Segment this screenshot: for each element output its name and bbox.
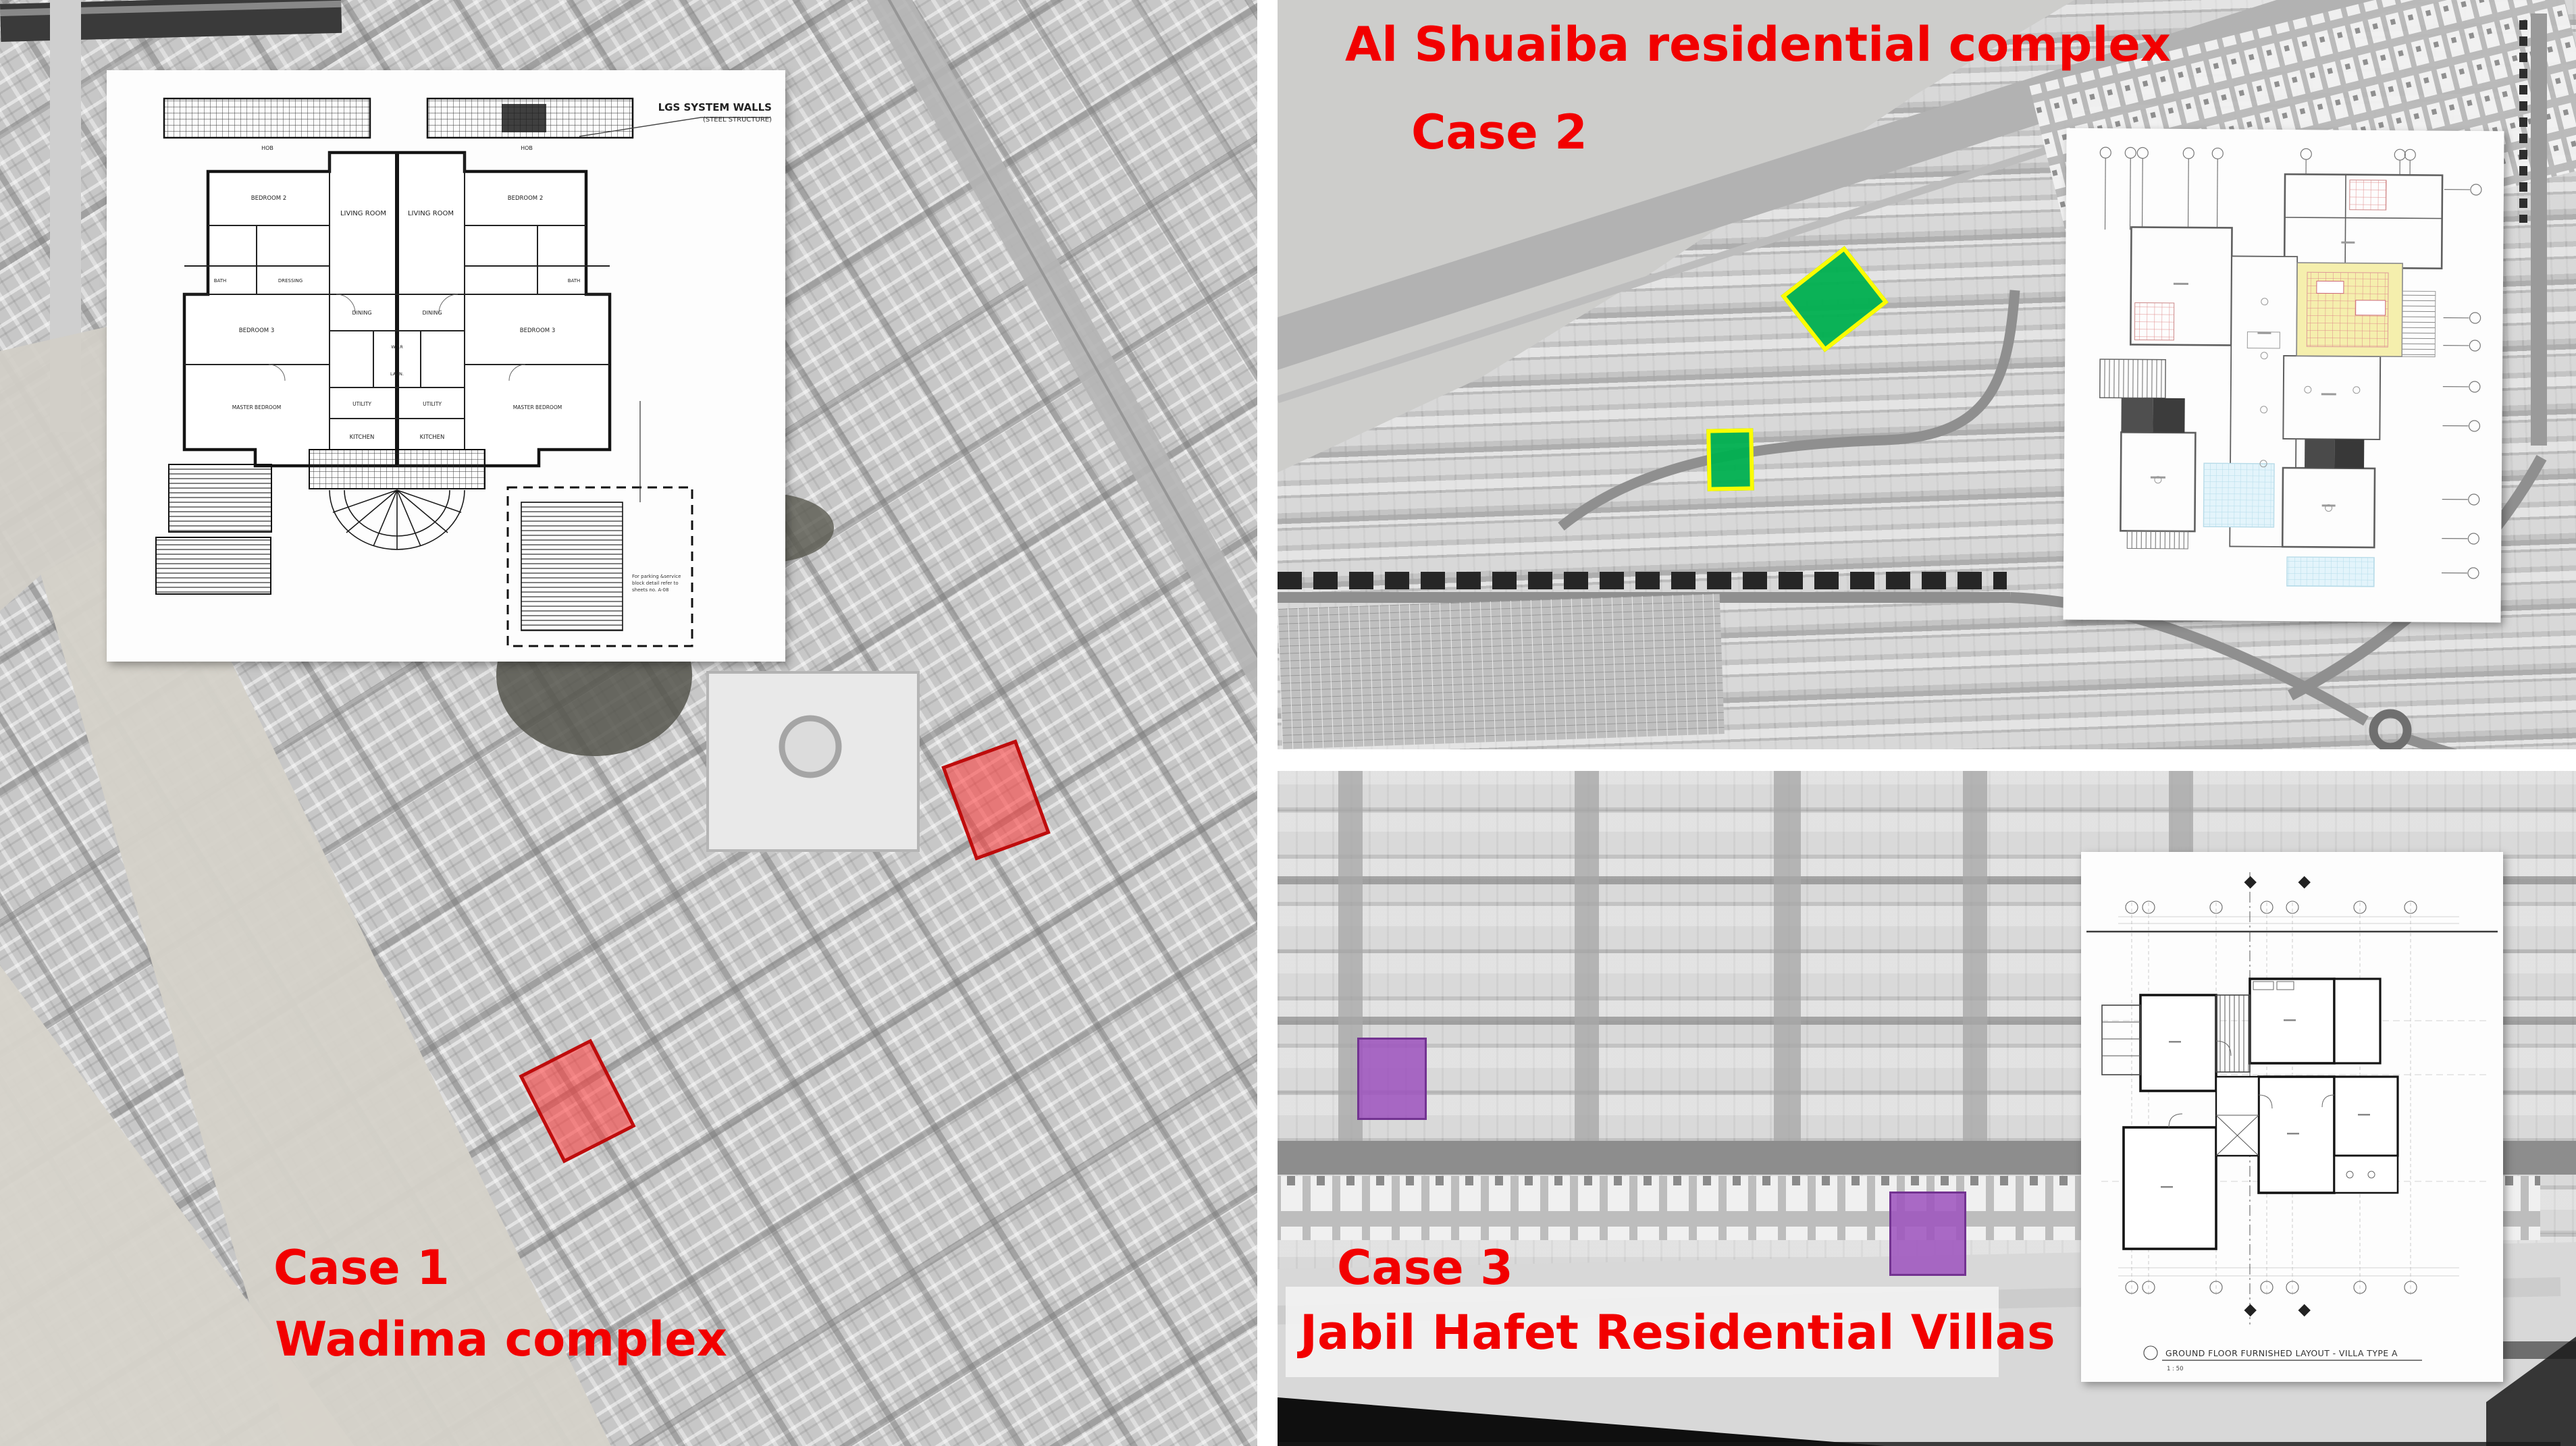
case2-name: Al Shuaiba residential complex bbox=[1345, 20, 2171, 70]
callout-text-1: LGS SYSTEM WALLS bbox=[658, 101, 772, 113]
svg-text:LIVING ROOM: LIVING ROOM bbox=[408, 210, 454, 217]
porch-steps bbox=[2102, 1022, 2140, 1056]
svg-text:HOB: HOB bbox=[261, 145, 273, 151]
parking-note: For parking &service block detail refer … bbox=[632, 574, 681, 593]
svg-text:BATH: BATH bbox=[568, 278, 581, 284]
svg-text:LAUN.: LAUN. bbox=[390, 371, 404, 377]
svg-text:MASTER BEDROOM: MASTER BEDROOM bbox=[513, 404, 562, 410]
dark-room-3 bbox=[2305, 439, 2334, 468]
road-right-edge bbox=[2531, 14, 2547, 446]
pergola-left bbox=[164, 99, 370, 138]
pergola-bottom-left-1 bbox=[169, 464, 271, 532]
svg-text:MASTER BEDROOM: MASTER BEDROOM bbox=[232, 404, 281, 410]
case1-satellite-image: Case 1 Wadima complex LGS SYSTEM WALLS (… bbox=[0, 0, 1257, 1446]
grid-bubbles-right bbox=[2442, 184, 2481, 579]
svg-text:BEDROOM 3: BEDROOM 3 bbox=[239, 327, 274, 334]
kitchen-tag-1 bbox=[2317, 281, 2344, 293]
cemetery-block bbox=[1278, 593, 1725, 749]
svg-text:BEDROOM 2: BEDROOM 2 bbox=[251, 195, 286, 202]
stair-core bbox=[2216, 995, 2250, 1072]
svg-text:sheets no. A-08: sheets no. A-08 bbox=[632, 587, 668, 593]
case3-label: Case 3 bbox=[1337, 1243, 1513, 1293]
pergola-block bbox=[502, 104, 546, 132]
svg-text:LIVING ROOM: LIVING ROOM bbox=[340, 210, 386, 217]
case3-highlight-building-2 bbox=[1889, 1191, 1966, 1276]
svg-text:UTILITY: UTILITY bbox=[352, 401, 371, 407]
circular-plaza bbox=[782, 718, 839, 775]
svg-text:KITCHEN: KITCHEN bbox=[350, 434, 375, 441]
pergola-bottom-left-2 bbox=[156, 537, 271, 594]
svg-text:For parking &service: For parking &service bbox=[632, 574, 681, 579]
entry-porch bbox=[2102, 1005, 2140, 1075]
svg-text:BEDROOM 3: BEDROOM 3 bbox=[520, 327, 555, 334]
callout-text-2: (STEEL STRUCTURE) bbox=[703, 116, 772, 124]
svg-text:DINING: DINING bbox=[352, 310, 371, 316]
caption-bubble bbox=[2144, 1346, 2157, 1360]
case3-satellite-image: Case 3 Jabil Hafet Residential Villas bbox=[1278, 771, 2576, 1446]
case1-floorplan-drawing: LGS SYSTEM WALLS (STEEL STRUCTURE) bbox=[107, 70, 785, 662]
porch-steps bbox=[2127, 531, 2188, 549]
stairs bbox=[2100, 359, 2165, 398]
kitchen-tag-2 bbox=[2356, 300, 2386, 315]
pool-terrace-2 bbox=[2287, 557, 2374, 587]
roundabout bbox=[2373, 714, 2407, 747]
spiral-stair bbox=[330, 490, 465, 550]
side-streets bbox=[1338, 771, 2193, 1146]
terrace-lines bbox=[2402, 291, 2436, 356]
svg-text:block detail refer to: block detail refer to bbox=[632, 581, 679, 586]
svg-text:DINING: DINING bbox=[422, 310, 442, 316]
plan2-walls bbox=[2120, 173, 2442, 547]
svg-text:UTILITY: UTILITY bbox=[423, 401, 442, 407]
case2-floorplan-inset bbox=[2063, 128, 2504, 623]
case3-floorplan-inset: GROUND FLOOR FURNISHED LAYOUT - VILLA TY… bbox=[2081, 852, 2503, 1382]
svg-text:KITCHEN: KITCHEN bbox=[420, 434, 445, 441]
plan3-caption: GROUND FLOOR FURNISHED LAYOUT - VILLA TY… bbox=[2165, 1348, 2398, 1358]
case3-highlight-building-1 bbox=[1357, 1038, 1427, 1120]
dark-room-4 bbox=[2334, 439, 2364, 468]
svg-text:W.T.R: W.T.R bbox=[391, 344, 403, 350]
case1-floorplan-inset: LGS SYSTEM WALLS (STEEL STRUCTURE) bbox=[107, 70, 785, 662]
svg-text:BEDROOM 2: BEDROOM 2 bbox=[508, 195, 543, 202]
case2-floorplan-drawing bbox=[2063, 128, 2504, 623]
case2-highlight-building-2 bbox=[1706, 428, 1754, 491]
case2-satellite-image: Al Shuaiba residential complex Case 2 bbox=[1278, 0, 2576, 749]
villa-walls bbox=[2124, 979, 2398, 1249]
svg-text:DRESSING: DRESSING bbox=[278, 278, 303, 284]
pool-terrace-1 bbox=[2203, 463, 2274, 527]
main-road bbox=[878, 0, 1257, 695]
dark-room-1 bbox=[2121, 398, 2153, 432]
case3-name: Jabil Hafet Residential Villas bbox=[1300, 1308, 2055, 1358]
case2-label: Case 2 bbox=[1411, 108, 1587, 158]
case3-floorplan-drawing: GROUND FLOOR FURNISHED LAYOUT - VILLA TY… bbox=[2081, 852, 2503, 1382]
svg-text:HOB: HOB bbox=[521, 145, 533, 151]
svg-text:BATH: BATH bbox=[214, 278, 227, 284]
terrace-hatch bbox=[309, 450, 485, 489]
figure-three-case-studies: { "case1": { "case_label": "Case 1", "na… bbox=[0, 0, 2576, 1446]
dark-room-2 bbox=[2153, 398, 2184, 433]
plan3-scale: 1 : 50 bbox=[2167, 1366, 2184, 1372]
bath-hatch-1 bbox=[2350, 180, 2386, 210]
parking-pergola bbox=[521, 502, 623, 631]
bath-hatch-2 bbox=[2134, 302, 2174, 340]
case1-name: Wadima complex bbox=[275, 1315, 727, 1365]
bottom-strip bbox=[1278, 1442, 2560, 1446]
case1-label: Case 1 bbox=[273, 1243, 450, 1293]
